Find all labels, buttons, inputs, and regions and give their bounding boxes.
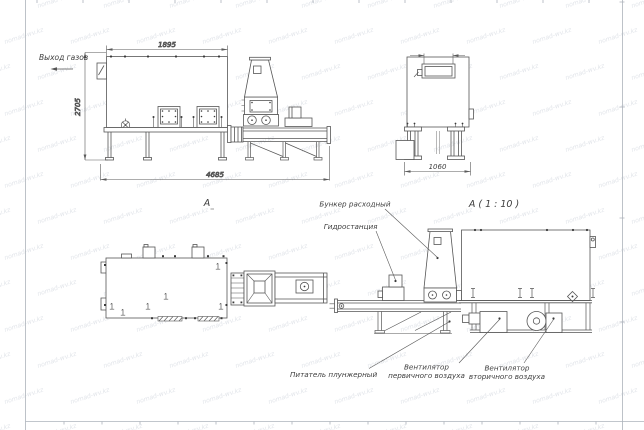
watermark-text: nomad-wv.kz	[69, 26, 111, 45]
gas-outlet-stub	[97, 63, 107, 79]
watermark-text: nomad-wv.kz	[300, 134, 342, 153]
watermark-text: nomad-wv.kz	[531, 26, 573, 45]
watermark-text: nomad-wv.kz	[102, 206, 144, 225]
watermark-text: nomad-wv.kz	[399, 170, 441, 189]
watermark-text: nomad-wv.kz	[531, 170, 573, 189]
watermark-text: nomad-wv.kz	[498, 0, 540, 10]
watermark-text: nomad-wv.kz	[531, 98, 573, 117]
end-side-bump	[469, 109, 474, 119]
frame-ticks-bottom	[64, 422, 596, 425]
frame-ticks-right	[620, 2, 625, 322]
drawing-sheet: nomad-wv.kznomad-wv.kznomad-wv.kznomad-w…	[0, 0, 644, 430]
watermark-text: nomad-wv.kz	[300, 62, 342, 81]
secondary-fan-label-line2: вторичного воздуха	[469, 372, 545, 381]
watermark-text: nomad-wv.kz	[333, 170, 375, 189]
watermark-text: nomad-wv.kz	[564, 62, 606, 81]
watermark-text: nomad-wv.kz	[0, 134, 12, 153]
view-end	[396, 54, 474, 176]
watermark-text: nomad-wv.kz	[36, 62, 78, 81]
watermark-text: nomad-wv.kz	[564, 350, 606, 369]
watermark-text: nomad-wv.kz	[201, 26, 243, 45]
watermark-text: nomad-wv.kz	[3, 26, 45, 45]
rear-furnace-body	[459, 229, 596, 303]
watermark-text: nomad-wv.kz	[0, 62, 12, 81]
dim-4685-label: 4685	[206, 171, 224, 179]
rear-hopper	[424, 229, 462, 302]
watermark-text: nomad-wv.kz	[399, 314, 441, 333]
watermark-text: nomad-wv.kz	[630, 350, 644, 369]
watermark-text: nomad-wv.kz	[201, 386, 243, 405]
feeder-conveyor	[228, 126, 331, 144]
watermark-text: nomad-wv.kz	[564, 206, 606, 225]
gas-outlet-label: Выход газов	[39, 53, 88, 62]
watermark-text: nomad-wv.kz	[300, 0, 342, 10]
watermark-text: nomad-wv.kz	[465, 170, 507, 189]
watermark-text: nomad-wv.kz	[531, 386, 573, 405]
view-a-label: А	[203, 198, 211, 209]
watermark-text: nomad-wv.kz	[432, 134, 474, 153]
watermark-text: nomad-wv.kz	[597, 98, 639, 117]
watermark-text: nomad-wv.kz	[498, 422, 540, 430]
watermark-text: nomad-wv.kz	[300, 350, 342, 369]
watermark-text: nomad-wv.kz	[399, 26, 441, 45]
dim-1060-label: 1060	[429, 163, 447, 171]
watermark-text: nomad-wv.kz	[36, 422, 78, 430]
watermark-text: nomad-wv.kz	[168, 350, 210, 369]
watermark-text: nomad-wv.kz	[3, 242, 45, 261]
watermark-text: nomad-wv.kz	[432, 422, 474, 430]
watermark-text: nomad-wv.kz	[168, 422, 210, 430]
watermark-text: nomad-wv.kz	[597, 242, 639, 261]
watermark-text: nomad-wv.kz	[36, 134, 78, 153]
leader-hydro	[376, 231, 396, 280]
watermark-text: nomad-wv.kz	[432, 206, 474, 225]
watermark-text: nomad-wv.kz	[267, 170, 309, 189]
watermark-text: nomad-wv.kz	[597, 26, 639, 45]
watermark-text: nomad-wv.kz	[366, 62, 408, 81]
watermark-text: nomad-wv.kz	[630, 0, 644, 10]
watermark-text: nomad-wv.kz	[69, 386, 111, 405]
watermark-text: nomad-wv.kz	[69, 242, 111, 261]
watermark-text: nomad-wv.kz	[564, 134, 606, 153]
watermark-text: nomad-wv.kz	[135, 386, 177, 405]
end-corner-box	[396, 141, 414, 160]
watermark-text: nomad-wv.kz	[498, 62, 540, 81]
watermark-text: nomad-wv.kz	[0, 278, 12, 297]
watermark-text: nomad-wv.kz	[36, 278, 78, 297]
watermark-text: nomad-wv.kz	[36, 206, 78, 225]
view-a-scale-label: А ( 1 : 10 )	[468, 199, 519, 210]
watermark-text: nomad-wv.kz	[465, 26, 507, 45]
hydro-station-label: Гидростанция	[324, 222, 378, 231]
watermark-text: nomad-wv.kz	[3, 314, 45, 333]
watermark-text: nomad-wv.kz	[630, 134, 644, 153]
watermark-text: nomad-wv.kz	[465, 386, 507, 405]
hopper-label: Бункер расходный	[319, 200, 390, 209]
watermark-text: nomad-wv.kz	[0, 350, 12, 369]
plan-left-brackets	[101, 262, 106, 310]
dim-2705-label: 2705	[74, 98, 82, 116]
watermark-text: nomad-wv.kz	[36, 0, 78, 10]
plan-chute	[244, 271, 275, 306]
watermark-text: nomad-wv.kz	[333, 98, 375, 117]
watermark-text: nomad-wv.kz	[333, 26, 375, 45]
plan-flange-connector	[231, 273, 244, 305]
watermark-text: nomad-wv.kz	[267, 314, 309, 333]
watermark-text: nomad-wv.kz	[630, 206, 644, 225]
watermark-text: nomad-wv.kz	[630, 422, 644, 430]
watermark-text: nomad-wv.kz	[366, 350, 408, 369]
watermark-text: nomad-wv.kz	[366, 0, 408, 10]
inspection-hatch-left	[158, 107, 180, 128]
watermark-text: nomad-wv.kz	[102, 0, 144, 10]
watermark-text: nomad-wv.kz	[234, 350, 276, 369]
watermark-text: nomad-wv.kz	[267, 242, 309, 261]
watermark-text: nomad-wv.kz	[69, 314, 111, 333]
watermark-text: nomad-wv.kz	[333, 242, 375, 261]
watermark-text: nomad-wv.kz	[234, 0, 276, 10]
primary-fan-label-line2: первичного воздуха	[388, 371, 465, 380]
watermark-text: nomad-wv.kz	[630, 62, 644, 81]
watermark-text: nomad-wv.kz	[597, 386, 639, 405]
watermark-text: nomad-wv.kz	[234, 206, 276, 225]
watermark-layer: nomad-wv.kznomad-wv.kznomad-wv.kznomad-w…	[0, 0, 644, 430]
dim-1895-label: 1895	[158, 41, 176, 49]
watermark-text: nomad-wv.kz	[0, 206, 12, 225]
watermark-text: nomad-wv.kz	[36, 350, 78, 369]
watermark-text: nomad-wv.kz	[366, 422, 408, 430]
watermark-text: nomad-wv.kz	[267, 386, 309, 405]
watermark-text: nomad-wv.kz	[564, 0, 606, 10]
watermark-text: nomad-wv.kz	[3, 170, 45, 189]
watermark-text: nomad-wv.kz	[333, 314, 375, 333]
watermark-text: nomad-wv.kz	[333, 386, 375, 405]
inspection-hatch-right	[197, 107, 219, 128]
watermark-text: nomad-wv.kz	[102, 134, 144, 153]
watermark-text: nomad-wv.kz	[234, 422, 276, 430]
watermark-text: nomad-wv.kz	[597, 170, 639, 189]
plunger-feeder-label: Питатель плунжерный	[290, 370, 377, 379]
watermark-text: nomad-wv.kz	[3, 386, 45, 405]
watermark-text: nomad-wv.kz	[102, 422, 144, 430]
watermark-text: nomad-wv.kz	[432, 0, 474, 10]
watermark-text: nomad-wv.kz	[0, 422, 12, 430]
drawing-svg: nomad-wv.kznomad-wv.kznomad-wv.kznomad-w…	[0, 0, 644, 430]
plan-body	[106, 258, 227, 318]
watermark-text: nomad-wv.kz	[0, 0, 12, 10]
watermark-text: nomad-wv.kz	[630, 278, 644, 297]
watermark-text: nomad-wv.kz	[267, 26, 309, 45]
watermark-text: nomad-wv.kz	[498, 134, 540, 153]
hydraulic-cylinder-box	[285, 107, 312, 127]
watermark-text: nomad-wv.kz	[300, 422, 342, 430]
watermark-text: nomad-wv.kz	[135, 170, 177, 189]
watermark-text: nomad-wv.kz	[564, 422, 606, 430]
watermark-text: nomad-wv.kz	[399, 386, 441, 405]
watermark-text: nomad-wv.kz	[102, 350, 144, 369]
watermark-text: nomad-wv.kz	[3, 98, 45, 117]
watermark-text: nomad-wv.kz	[168, 134, 210, 153]
plan-conveyor	[275, 273, 327, 303]
watermark-text: nomad-wv.kz	[168, 206, 210, 225]
watermark-text: nomad-wv.kz	[597, 314, 639, 333]
view-rear-elevation	[330, 209, 596, 369]
